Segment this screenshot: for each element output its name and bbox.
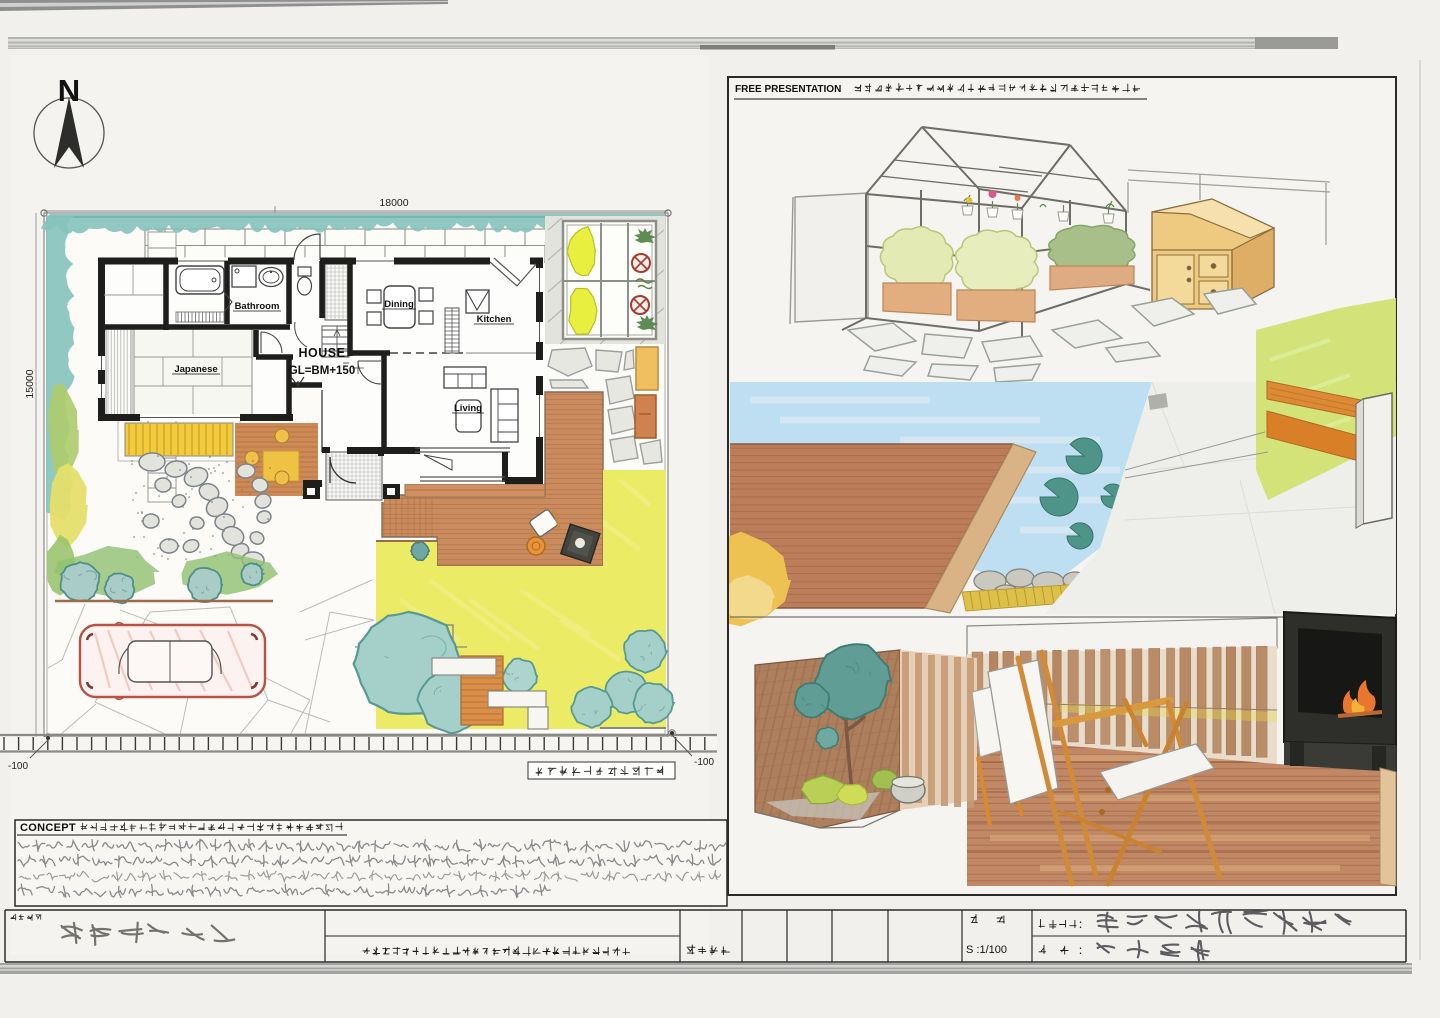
svg-text:Dining: Dining (384, 299, 414, 310)
svg-text:Bathroom: Bathroom (235, 301, 280, 312)
svg-text:FREE PRESENTATION: FREE PRESENTATION (735, 84, 841, 95)
svg-text:HOUSE: HOUSE (299, 346, 346, 360)
svg-text:Kitchen: Kitchen (477, 314, 512, 325)
svg-text:：: ： (1078, 920, 1088, 931)
svg-text:Japanese: Japanese (174, 364, 217, 375)
svg-text:GL=BM+150: GL=BM+150 (289, 365, 355, 377)
svg-text:N: N (58, 73, 80, 108)
svg-text:15000: 15000 (24, 369, 36, 398)
svg-text:18000: 18000 (379, 197, 408, 209)
svg-text:-100: -100 (694, 757, 714, 768)
svg-text:S :1/100: S :1/100 (966, 944, 1007, 956)
svg-text:CONCEPT: CONCEPT (20, 822, 76, 834)
svg-text:-100: -100 (8, 761, 28, 772)
svg-text:Living: Living (454, 403, 482, 414)
svg-text:：: ： (1078, 946, 1088, 957)
